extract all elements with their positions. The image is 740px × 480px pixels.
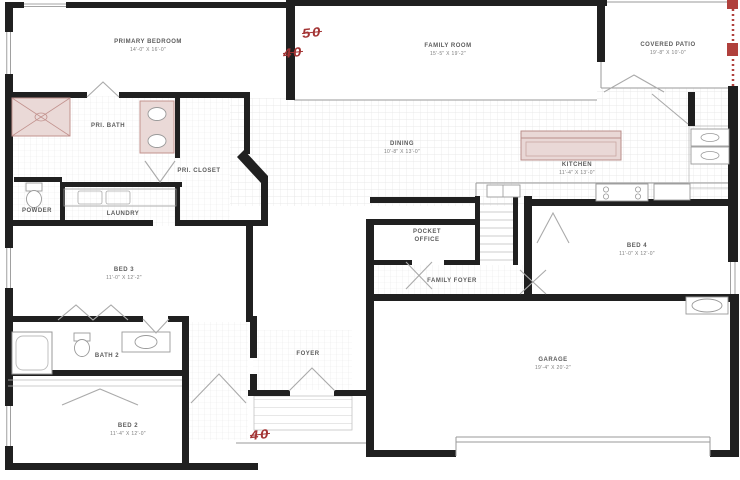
lot-dimension-marker-40-bottom: 40 (249, 426, 271, 443)
floor-plan-svg (0, 0, 740, 480)
bath2-door (143, 319, 169, 333)
patio-dashed-wall (727, 0, 738, 86)
room-label-kitchen: KITCHEN 11'-4" X 13'-0" (559, 162, 595, 176)
refrigerator-fixture (654, 184, 690, 200)
bed4-closet-door (537, 213, 569, 243)
water-heater-fixture (686, 297, 728, 314)
room-label-dining: DINING 10'-8" X 13'-0" (384, 141, 420, 155)
garage-door (456, 437, 710, 457)
double-vanity-fixture (140, 101, 174, 153)
room-label-pri-bath: PRI. BATH (91, 123, 125, 131)
room-label-powder: POWDER (22, 208, 52, 216)
room-label-bath-2: BATH 2 (95, 353, 119, 361)
kitchen-sink-fixture (487, 185, 520, 197)
room-label-bed-4: BED 4 11'-0" X 12'-0" (619, 243, 655, 257)
room-label-primary-bedroom: PRIMARY BEDROOM 14'-0" X 16'-0" (114, 39, 182, 53)
floor-plan-image: PRIMARY BEDROOM 14'-0" X 16'-0" FAMILY R… (0, 0, 740, 480)
bath2-sink-fixture (122, 332, 170, 352)
room-label-foyer: FOYER (296, 351, 319, 359)
bed2-closet-shelf (8, 380, 182, 386)
primary-bedroom-door (87, 82, 119, 97)
room-label-covered-patio: COVERED PATIO 19'-8" X 10'-0" (640, 42, 695, 56)
room-label-pri-closet: PRI. CLOSET (177, 168, 220, 176)
room-label-bed-2: BED 2 11'-4" X 12'-0" (110, 423, 146, 437)
room-label-family-room: FAMILY ROOM 15'-5" X 19'-2" (424, 43, 471, 57)
room-label-bed-3: BED 3 11'-0" X 12'-2" (106, 267, 142, 281)
kitchen-island-fixture (521, 131, 621, 160)
room-label-garage: GARAGE 19'-4" X 20'-2" (535, 357, 571, 371)
powder-toilet-fixture (26, 183, 42, 208)
room-label-family-foyer: FAMILY FOYER (427, 278, 477, 286)
lot-dimension-marker-40-top: 40 (282, 44, 304, 61)
pantry-shelves (480, 204, 513, 260)
shower-fixture (12, 98, 70, 136)
bed2-closet-door (62, 389, 138, 405)
bath2-toilet-fixture (74, 333, 90, 357)
bathtub-fixture (12, 332, 52, 374)
room-label-laundry: LAUNDRY (107, 211, 140, 219)
room-label-pocket-office: POCKET OFFICE (407, 229, 447, 245)
lot-dimension-marker-50: 50 (301, 24, 323, 41)
range-fixture (596, 184, 648, 201)
